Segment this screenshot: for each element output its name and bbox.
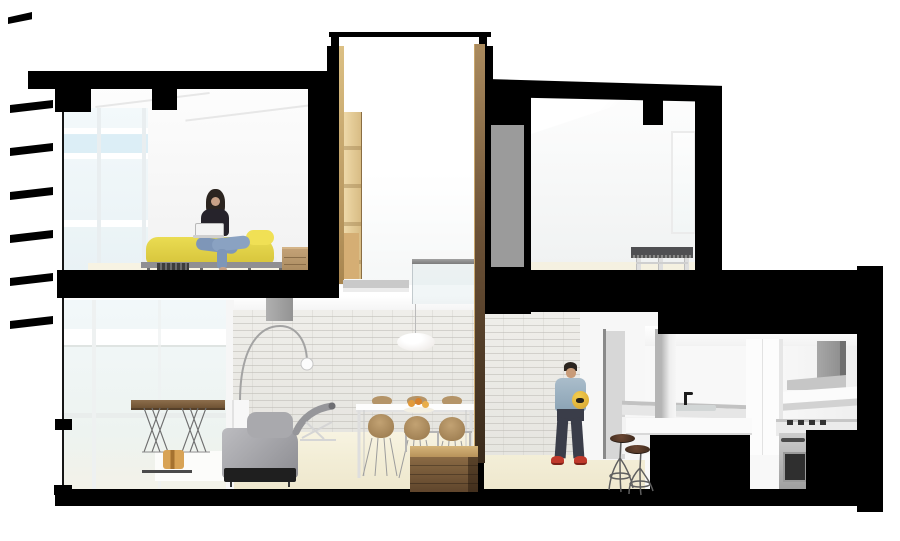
arc-lamp-shade (301, 358, 313, 370)
roof-downstand-beam (55, 88, 91, 112)
daybed-stretcher (636, 262, 688, 264)
sofa-back-cushion (247, 412, 293, 438)
sofa-leg (230, 482, 232, 487)
facade-louvre-fin (10, 316, 53, 329)
dining-chair (439, 417, 465, 441)
arc-lamp-stem (240, 326, 307, 402)
cabinet-run-cut (806, 430, 859, 492)
tall-cabinet (746, 339, 783, 455)
saucer-pendant-lamp (397, 333, 435, 351)
facade-louvre-fin (10, 143, 53, 156)
man-face (566, 368, 576, 378)
gray-door-panel (491, 125, 524, 267)
facade-mullion (92, 300, 96, 491)
sofa-leg (288, 482, 290, 487)
facade-louvre-fin (8, 12, 32, 24)
sofa-base (224, 468, 296, 482)
ceiling-bulkhead-cut (643, 97, 663, 125)
roof-slab-left (28, 71, 339, 89)
oven-window (783, 452, 807, 482)
faucet-spout (684, 392, 693, 395)
light-well-timber-edge-right (474, 44, 485, 463)
chaise-base-frame (300, 422, 336, 440)
kitchen-island-cut (650, 431, 750, 491)
bed-duvet-fold (246, 230, 274, 245)
nightstand-drawer-line (284, 257, 306, 258)
window-transom (64, 153, 148, 159)
bedroom-lightwell-wall-cut (308, 86, 339, 298)
tall-cabinet-seam (762, 339, 763, 455)
kitchen-right-wall-cut (857, 266, 883, 512)
facade-mullion-cut (55, 419, 72, 430)
facade-light-shelf (63, 329, 230, 347)
upper-floor-slab-cut (57, 270, 339, 298)
chaise-headrest (329, 403, 336, 410)
glass-balustrade (412, 264, 479, 304)
bar-stool-seat (610, 434, 635, 443)
facade-louvre-fin (10, 187, 53, 200)
stair-box-shadow-edge (468, 457, 478, 492)
skylight-monitor-wall (327, 46, 339, 74)
mezzanine-landing-edge (343, 288, 409, 292)
second-bedroom-right-wall-cut (695, 92, 722, 272)
woman-hanging-leg (217, 249, 227, 269)
nightstand-drawer-line (284, 264, 306, 265)
timber-stool (163, 450, 184, 469)
bedroom-window (64, 108, 148, 270)
oven-handle (781, 438, 805, 442)
dining-chair (404, 416, 430, 440)
window-sky-reflection (64, 134, 148, 153)
chaise-body (296, 406, 332, 432)
apartment-section-rendering (0, 0, 900, 541)
woman-face (211, 197, 220, 206)
facade-louvre-fin (10, 230, 53, 243)
facade-louvre-fin (10, 273, 53, 286)
window-transom (64, 220, 148, 227)
daybed-bench-top (631, 247, 693, 255)
low-shelf-edge (142, 470, 192, 473)
bar-stool-seat (625, 445, 650, 454)
extract-hood-side (840, 341, 846, 380)
pendant-cord (415, 304, 416, 335)
chaise-longue (292, 398, 342, 444)
laptop-base (193, 235, 224, 238)
desk-wire-leg-lines (142, 408, 210, 452)
dining-chair (368, 414, 394, 438)
stair-box-tread (410, 446, 478, 457)
skylight-monitor-cap (329, 32, 491, 37)
facade-louvre-fin (10, 100, 53, 113)
helmet-facemask (576, 398, 584, 403)
mezzanine-landing (343, 280, 409, 288)
timber-ladder-base-cabinet (344, 233, 359, 279)
kitchen-ceiling-slab-cut (658, 300, 864, 334)
island-counter-top (626, 418, 752, 435)
window-mullion (97, 108, 101, 270)
roof-downstand-beam (152, 88, 177, 110)
red-sneaker (551, 456, 564, 465)
second-bedroom-window (671, 131, 696, 234)
kitchen-sink (671, 405, 716, 411)
red-sneaker (574, 456, 587, 465)
cooktop (787, 420, 829, 425)
